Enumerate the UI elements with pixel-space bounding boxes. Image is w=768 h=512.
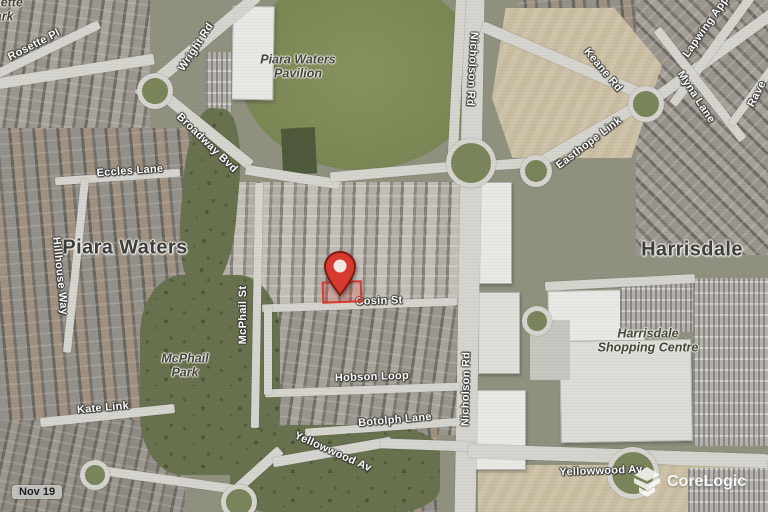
corelogic-watermark-text: CoreLogic [667,473,746,491]
suburb-label-harrisdale: Harrisdale [641,239,743,262]
poi-label-shopping-centre: Harrisdale Shopping Centre [589,327,707,356]
map-pin-icon [322,250,358,298]
sports-oval [240,0,480,170]
car-park [620,282,693,332]
street-label-mcphail-st: McPhail St [237,286,249,345]
park-label-rosette: Rosette Park [0,0,26,24]
roundabout [446,138,496,188]
car-park [693,278,768,446]
suburb-label-piara-waters: Piara Waters [62,237,187,260]
corelogic-diamond-icon [632,466,662,498]
park-label-mcphail: McPhail Park [154,352,216,381]
roundabout [137,73,173,109]
commercial-building [478,292,520,374]
imagery-date-badge: Nov 19 [12,485,62,499]
street-label-cosin-st: Cosin St [355,294,402,308]
courts [281,127,317,175]
property-pin[interactable] [322,250,358,298]
roundabout [80,460,110,490]
road-hobson [264,305,272,395]
corelogic-watermark: CoreLogic [632,466,746,498]
roundabout [520,155,552,187]
street-label-nicholson-south: Nicholson Rd [459,352,472,427]
satellite-map[interactable]: Rosette Park Rosette Pl Wright Rd Broadw… [0,0,768,512]
poi-label-pavilion: Piara Waters Pavilion [252,53,344,82]
roundabout [522,306,552,336]
roundabout [628,86,664,122]
roundabout [221,484,257,512]
